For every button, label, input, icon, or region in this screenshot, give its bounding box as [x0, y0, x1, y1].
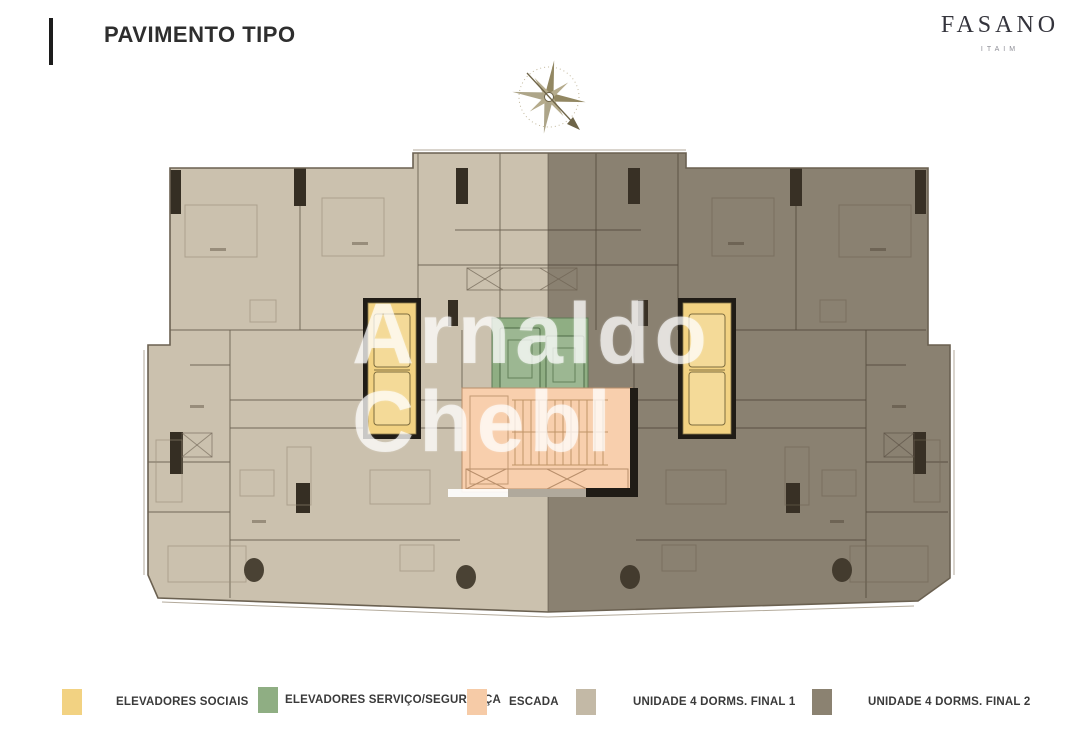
- floor-plan-page: { "header": { "title": "PAVIMENTO TIPO" …: [0, 0, 1073, 747]
- legend-label: ESCADA: [509, 696, 559, 708]
- legend-swatch-final-1: [576, 689, 596, 715]
- stair-block: [448, 388, 638, 497]
- legend-item-elevadores-sociais: ELEVADORES SOCIAIS: [62, 689, 248, 715]
- social-elevator-right: [678, 298, 736, 439]
- unit-final-2-region: [548, 140, 968, 625]
- legend: ELEVADORES SOCIAIS ELEVADORES SERVIÇO/SE…: [0, 686, 1073, 720]
- legend-label: ELEVADORES SOCIAIS: [116, 696, 248, 708]
- legend-item-elevadores-servico: ELEVADORES SERVIÇO/SEGURANÇA: [258, 687, 501, 713]
- legend-swatch-social: [62, 689, 82, 715]
- social-elevator-left: [363, 298, 421, 439]
- legend-item-escada: ESCADA: [467, 689, 559, 715]
- legend-swatch-service: [258, 687, 278, 713]
- legend-swatch-final-2: [812, 689, 832, 715]
- floor-plan-drawing: [0, 0, 1073, 747]
- legend-item-unidade-final-2: UNIDADE 4 DORMS. FINAL 2: [812, 689, 1030, 715]
- legend-label: UNIDADE 4 DORMS. FINAL 1: [633, 696, 795, 708]
- compass-rose-icon: [507, 55, 591, 139]
- legend-swatch-escada: [467, 689, 487, 715]
- legend-item-unidade-final-1: UNIDADE 4 DORMS. FINAL 1: [576, 689, 795, 715]
- legend-label: UNIDADE 4 DORMS. FINAL 2: [868, 696, 1030, 708]
